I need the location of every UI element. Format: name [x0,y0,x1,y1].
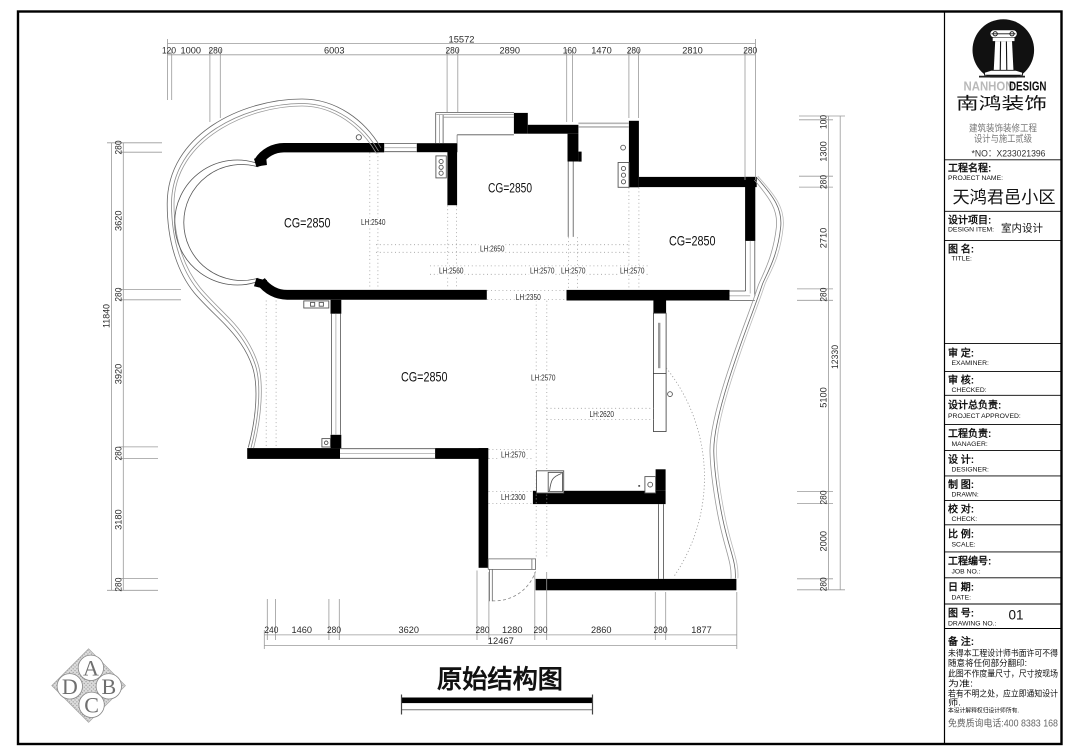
svg-text:3620: 3620 [399,625,420,635]
svg-text:审 定:: 审 定: [948,347,974,360]
svg-text:15572: 15572 [449,34,475,44]
svg-text:MANAGER:: MANAGER: [952,441,988,448]
svg-text:C: C [84,692,99,717]
svg-text:DRAWING NO.:: DRAWING NO.: [948,620,997,627]
svg-text:工程负责:: 工程负责: [948,427,991,440]
svg-text:设 计:: 设 计: [948,453,974,466]
svg-text:01: 01 [1009,608,1024,623]
svg-text:D: D [62,674,78,699]
svg-text:280: 280 [446,46,460,56]
svg-text:280: 280 [819,288,829,302]
svg-text:280: 280 [114,141,124,155]
svg-text:此图不作度量尺寸，尺寸按现场: 此图不作度量尺寸，尺寸按现场 [948,668,1058,679]
svg-text:DESIGNER:: DESIGNER: [952,467,990,474]
svg-text:100: 100 [819,115,829,129]
svg-text:3620: 3620 [114,211,124,232]
svg-text:随意将任何部分翻印:: 随意将任何部分翻印: [948,657,1027,668]
svg-text:NANHON: NANHON [964,80,1014,94]
svg-text:6003: 6003 [324,46,345,56]
svg-text:室内设计: 室内设计 [1001,222,1043,235]
svg-text:PROJECT APPROVED:: PROJECT APPROVED: [948,413,1021,420]
svg-text:备 注:: 备 注: [947,635,974,648]
svg-text:1000: 1000 [181,46,202,56]
svg-text:1460: 1460 [292,625,313,635]
svg-text:LH:2540: LH:2540 [361,217,386,227]
svg-text:设计项目:: 设计项目: [948,214,991,227]
svg-text:290: 290 [534,625,548,635]
svg-text:*NO：X233021396: *NO：X233021396 [972,149,1046,160]
svg-text:原始结构图: 原始结构图 [437,665,563,694]
svg-text:LH:2570: LH:2570 [620,266,645,276]
svg-text:2810: 2810 [682,46,703,56]
svg-text:DESIGN: DESIGN [1009,80,1047,94]
svg-text:CHECK:: CHECK: [952,516,978,523]
svg-text:240: 240 [264,625,278,635]
svg-text:A: A [83,655,99,680]
svg-text:天鸿君邑小区: 天鸿君邑小区 [953,188,1056,207]
svg-text:3180: 3180 [114,509,124,530]
svg-text:图 号:: 图 号: [948,608,974,620]
svg-text:LH:2350: LH:2350 [516,292,541,302]
svg-text:280: 280 [327,625,341,635]
svg-text:DATE:: DATE: [952,594,972,601]
svg-text:2710: 2710 [819,228,829,249]
svg-text:160: 160 [563,46,577,56]
svg-text:制 图:: 制 图: [948,478,974,491]
svg-text:LH:2570: LH:2570 [531,372,556,382]
svg-text:师.: 师. [948,697,961,708]
svg-text:3920: 3920 [114,364,124,385]
svg-text:1280: 1280 [502,625,523,635]
svg-text:280: 280 [476,625,490,635]
svg-text:未得本工程设计师书面许可不得: 未得本工程设计师书面许可不得 [948,647,1058,658]
svg-text:1470: 1470 [591,46,612,56]
svg-text:工程名程:: 工程名程: [948,162,991,175]
svg-text:CG=2850: CG=2850 [284,215,331,231]
svg-text:LH:2570: LH:2570 [501,450,526,460]
svg-text:2860: 2860 [591,625,612,635]
svg-text:12467: 12467 [488,636,514,646]
svg-text:工程编号:: 工程编号: [948,555,991,568]
svg-text:CG=2850: CG=2850 [488,181,532,196]
svg-text:280: 280 [114,447,124,461]
svg-text:B: B [101,674,116,699]
svg-text:LH:2300: LH:2300 [501,492,526,502]
svg-text:120: 120 [162,46,176,56]
svg-text:CHECKED:: CHECKED: [952,387,987,394]
svg-text:EXAMINER:: EXAMINER: [952,360,990,367]
svg-text:图 名:: 图 名: [948,243,974,256]
svg-text:2000: 2000 [819,531,829,552]
svg-text:11840: 11840 [102,304,112,328]
svg-text:LH:2620: LH:2620 [590,409,615,419]
svg-text:比 例:: 比 例: [948,528,974,541]
svg-text:DESIGN ITEM:: DESIGN ITEM: [948,227,994,234]
svg-text:280: 280 [654,625,668,635]
svg-text:12330: 12330 [830,345,840,369]
svg-text:5100: 5100 [819,387,829,408]
svg-text:LH:2570: LH:2570 [561,266,586,276]
svg-text:280: 280 [209,46,223,56]
svg-text:LH:2570: LH:2570 [530,266,555,276]
svg-text:日 期:: 日 期: [948,581,974,594]
svg-text:免费质询电话:400 8383 168: 免费质询电话:400 8383 168 [948,717,1058,730]
svg-text:1877: 1877 [691,625,712,635]
svg-text:TITLE:: TITLE: [952,256,973,263]
svg-text:280: 280 [743,46,757,56]
svg-text:LH:2560: LH:2560 [439,266,464,276]
svg-text:280: 280 [819,491,829,505]
svg-text:为准:: 为准: [948,678,973,689]
svg-text:280: 280 [819,175,829,189]
svg-text:CG=2850: CG=2850 [669,233,716,249]
svg-text:PROJECT NAME:: PROJECT NAME: [948,175,1003,182]
svg-text:DRAWN:: DRAWN: [952,492,979,499]
svg-text:280: 280 [114,578,124,592]
svg-text:280: 280 [114,288,124,302]
svg-text:建筑装饰装修工程: 建筑装饰装修工程 [969,123,1037,135]
svg-text:南鸿装饰: 南鸿装饰 [956,94,1047,113]
svg-text:JOB NO.:: JOB NO.: [952,568,981,575]
svg-text:1300: 1300 [819,141,829,162]
svg-text:本设计解释权归设计师所有.: 本设计解释权归设计师所有. [948,707,1019,715]
svg-text:LH:2650: LH:2650 [480,243,505,253]
svg-text:2890: 2890 [500,46,521,56]
svg-text:若有不明之处，应立即通知设计: 若有不明之处，应立即通知设计 [948,688,1058,699]
svg-text:设计与施工贰级: 设计与施工贰级 [974,133,1032,145]
svg-text:280: 280 [819,577,829,591]
svg-text:校 对:: 校 对: [948,503,974,516]
svg-text:CG=2850: CG=2850 [401,369,448,385]
svg-text:SCALE:: SCALE: [952,542,976,549]
svg-text:280: 280 [627,46,641,56]
svg-text:设计总负责:: 设计总负责: [948,399,1001,412]
svg-text:审 核:: 审 核: [948,374,974,387]
